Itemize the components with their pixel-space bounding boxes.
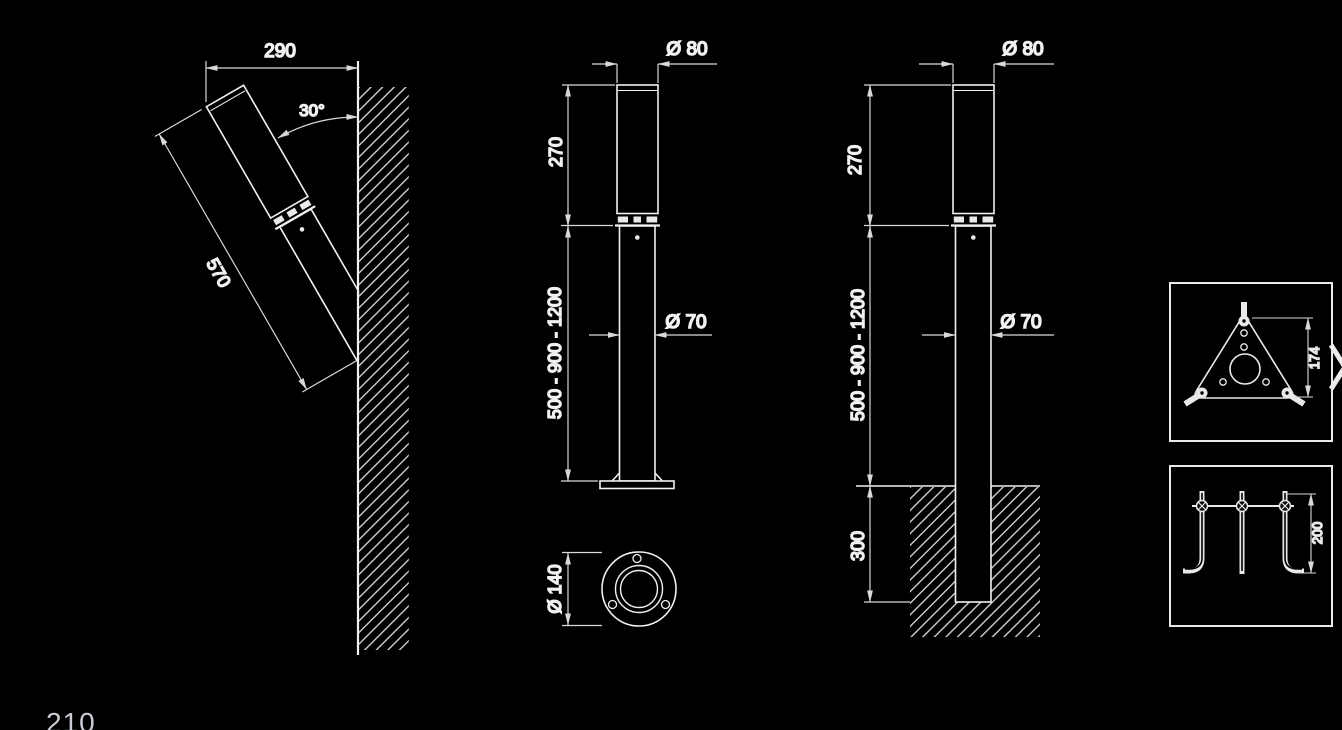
buried-bollard-view: Ø 80 270 500 - 900 - 1200 Ø 70 300 (845, 39, 1054, 637)
anchor-bolts-detail-box: 200 (1170, 466, 1332, 626)
dim-label-plate-height: 174 (1307, 346, 1322, 369)
dim-head-height (561, 85, 615, 226)
dim-label-base-diameter: Ø 140 (545, 564, 565, 613)
base-plate-plan-view (602, 552, 676, 626)
dim-head-diameter (919, 64, 1054, 83)
dim-label-burial-depth: 300 (848, 531, 868, 561)
dim-head-height (864, 85, 951, 226)
dim-pole-height (561, 226, 598, 481)
dim-label-head-height: 270 (845, 145, 865, 175)
center-hole (1230, 354, 1260, 384)
mounting-plate-detail-box: 174 (1170, 283, 1332, 441)
drawing-canvas: 570 290 30° (0, 0, 1342, 730)
dim-plate-height (1252, 318, 1313, 397)
dim-label-pole-height: 500 - 900 - 1200 (545, 287, 565, 419)
dim-label-body-length: 570 (202, 255, 234, 291)
dim-label-pole-diameter: Ø 70 (665, 312, 706, 333)
dim-label-head-diameter: Ø 80 (1002, 39, 1043, 60)
anchor-bolts (1183, 491, 1304, 574)
dim-label-width: 290 (264, 41, 296, 62)
dim-label-pole-height: 500 - 900 - 1200 (848, 289, 868, 421)
corner-bolts (1185, 302, 1304, 404)
surface-bollard-view: Ø 80 270 500 - 900 - 1200 Ø 70 (545, 39, 717, 626)
set-screw (635, 235, 640, 240)
dim-base-diameter (562, 553, 602, 626)
wall-hatch (359, 87, 409, 650)
dim-label-pole-diameter: Ø 70 (1000, 312, 1041, 333)
dim-label-bolt-length: 200 (1310, 522, 1325, 545)
set-screw (971, 235, 976, 240)
dim-label-angle: 30° (299, 101, 325, 120)
dim-head-diameter (592, 64, 717, 83)
technical-drawing-page: 570 290 30° (0, 0, 1342, 730)
wall-mounted-view: 570 290 30° (135, 0, 479, 730)
dim-angle-arc (278, 117, 358, 138)
dim-label-head-diameter: Ø 80 (666, 39, 707, 60)
dim-burial-depth (864, 486, 910, 602)
angled-luminaire-body: 570 (135, 85, 392, 404)
dim-label-head-height: 270 (546, 137, 566, 167)
page-number: 210 (46, 709, 96, 730)
